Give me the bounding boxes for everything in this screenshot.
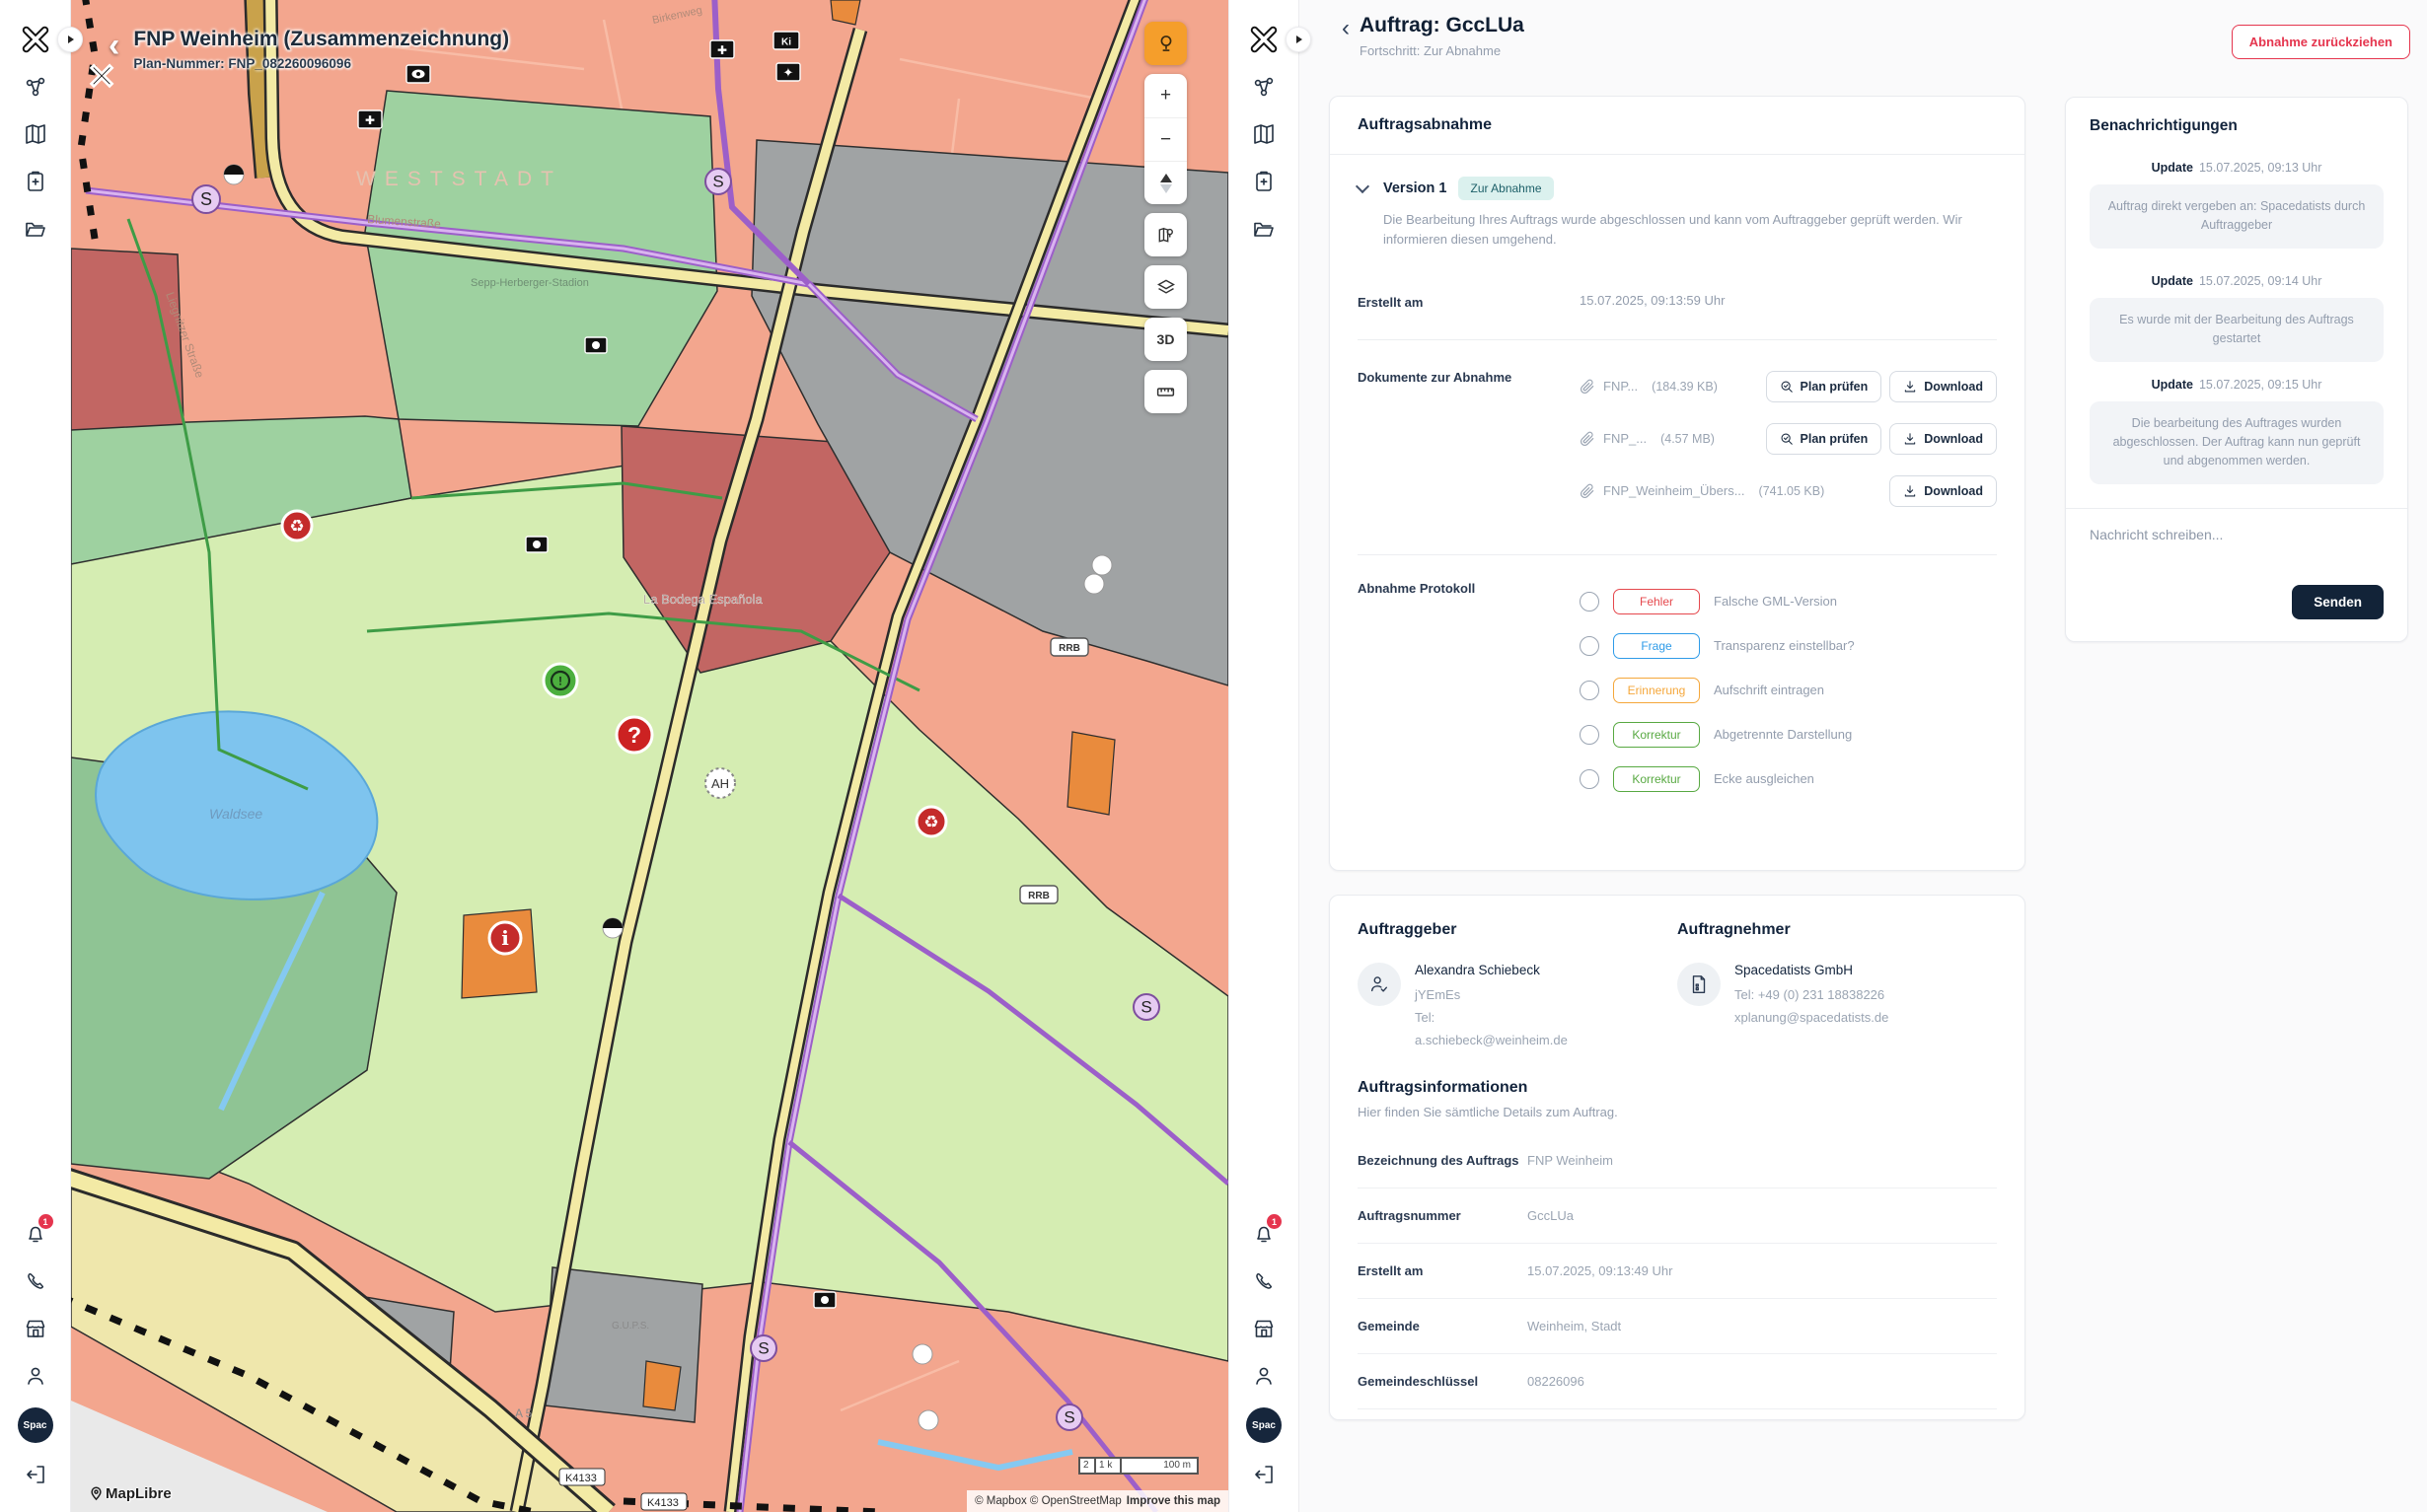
avatar[interactable]: Spac bbox=[18, 1407, 53, 1443]
protocol-radio[interactable] bbox=[1580, 681, 1599, 700]
paperclip-icon bbox=[1580, 431, 1595, 447]
back-chevron-icon[interactable]: ‹ bbox=[1342, 14, 1350, 58]
magnifier-check-icon bbox=[1780, 380, 1794, 394]
protocol-tag-korrektur: Korrektur bbox=[1613, 766, 1700, 792]
table-row: Erstellt am 15.07.2025, 09:13:49 Uhr bbox=[1358, 1244, 1997, 1299]
network-share-icon[interactable] bbox=[15, 66, 56, 108]
layers-button[interactable] bbox=[1144, 265, 1187, 309]
protocol-radio[interactable] bbox=[1580, 636, 1599, 656]
protocol-tag-erinnerung: Erinnerung bbox=[1613, 678, 1700, 703]
notification-message: Die bearbeitung des Auftrages wurden abg… bbox=[2090, 401, 2384, 484]
map-label-area: G.U.P.S. bbox=[612, 1321, 649, 1332]
svg-text:?: ? bbox=[627, 722, 641, 748]
download-button[interactable]: Download bbox=[1889, 475, 1997, 507]
contractor-block: Auftragnehmer Spacedatists GmbH Tel: +49… bbox=[1677, 921, 1997, 1051]
notification-message: Es wurde mit der Bearbeitung des Auftrag… bbox=[2090, 298, 2384, 362]
phone-icon[interactable] bbox=[1243, 1260, 1285, 1302]
layers-icon bbox=[1144, 265, 1187, 309]
notification-message: Auftrag direkt vergeben an: Spacedatists… bbox=[2090, 184, 2384, 249]
clipboard-add-icon[interactable] bbox=[15, 161, 56, 202]
document-name[interactable]: FNP... bbox=[1603, 379, 1638, 394]
zoom-out-button[interactable]: − bbox=[1144, 117, 1187, 161]
check-plan-button[interactable]: Plan prüfen bbox=[1766, 423, 1882, 455]
profile-person-icon[interactable] bbox=[15, 1355, 56, 1397]
progress-status: Fortschritt: Zur Abnahme bbox=[1360, 43, 1524, 58]
version-collapse-chevron-icon[interactable] bbox=[1356, 180, 1369, 193]
document-size: (741.05 KB) bbox=[1759, 484, 1825, 498]
notifications-title: Benachrichtigungen bbox=[2090, 117, 2384, 135]
download-button[interactable]: Download bbox=[1889, 423, 1997, 455]
client-email[interactable]: a.schiebeck@weinheim.de bbox=[1415, 1030, 1568, 1052]
svg-text:S: S bbox=[758, 1339, 769, 1358]
magnifier-check-icon bbox=[1780, 432, 1794, 446]
folder-icon[interactable] bbox=[15, 208, 56, 250]
bell-badge: 1 bbox=[1267, 1214, 1282, 1229]
map-label-lake: Waldsee bbox=[209, 806, 262, 822]
map-plan-title: FNP Weinheim (Zusammenzeichnung) bbox=[133, 28, 509, 51]
expand-sidebar-button[interactable] bbox=[57, 27, 83, 52]
bell-badge: 1 bbox=[38, 1214, 53, 1229]
order-info-card: Auftraggeber Alexandra Schiebeck jYEmEs … bbox=[1329, 895, 2025, 1420]
version-label: Version 1 bbox=[1383, 180, 1446, 196]
contractor-heading: Auftragnehmer bbox=[1677, 921, 1997, 939]
map-poi-ki: Ki bbox=[781, 37, 791, 48]
company-document-icon bbox=[1677, 963, 1721, 1006]
table-row: Auftragsnummer GccLUa bbox=[1358, 1188, 1997, 1244]
map-label-motorway: A 5 bbox=[515, 1406, 533, 1420]
document-row: FNP... (184.39 KB) Plan prüfen bbox=[1580, 368, 1997, 404]
acceptance-card-title: Auftragsabnahme bbox=[1330, 97, 2024, 155]
map-plan-number: Plan-Nummer: FNP_082260096096 bbox=[133, 56, 509, 71]
page-title: Auftrag: GccLUa bbox=[1360, 14, 1524, 37]
scale-label: 100 m bbox=[1120, 1457, 1199, 1475]
svg-text:RRB: RRB bbox=[1059, 643, 1080, 654]
document-name[interactable]: FNP_... bbox=[1603, 431, 1647, 446]
map-scalebar: 2 1 k 100 m bbox=[1078, 1457, 1199, 1475]
avatar[interactable]: Spac bbox=[1246, 1407, 1282, 1443]
compass-button[interactable] bbox=[1144, 161, 1187, 204]
table-row: Gemeinde Weinheim, Stadt bbox=[1358, 1299, 1997, 1354]
collapse-panel-button[interactable] bbox=[1286, 27, 1311, 52]
logout-icon[interactable] bbox=[15, 1454, 56, 1495]
protocol-list: Fehler Falsche GML-Version Frage Transpa… bbox=[1580, 579, 1997, 801]
paperclip-icon bbox=[1580, 483, 1595, 499]
map-attribution: © Mapbox © OpenStreetMap Improve this ma… bbox=[967, 1490, 1228, 1512]
created-at-value: 15.07.2025, 09:13:59 Uhr bbox=[1580, 293, 1997, 308]
three-d-label: 3D bbox=[1144, 318, 1187, 361]
map-nav-icon[interactable] bbox=[1243, 113, 1285, 155]
map-label-stadium: Sepp-Herberger-Stadion bbox=[471, 277, 589, 289]
content-header: ‹ Auftrag: GccLUa Fortschritt: Zur Abnah… bbox=[1329, 0, 2427, 96]
order-detail-panel: ‹ Auftrag: GccLUa Fortschritt: Zur Abnah… bbox=[1299, 0, 2427, 1512]
map-title-overlay: ‹ FNP Weinheim (Zusammenzeichnung) Plan-… bbox=[109, 28, 509, 71]
logout-icon[interactable] bbox=[1243, 1454, 1285, 1495]
svg-text:S: S bbox=[200, 189, 212, 209]
svg-text:✦: ✦ bbox=[783, 65, 794, 80]
order-info-title: Auftragsinformationen bbox=[1358, 1079, 1997, 1097]
withdraw-acceptance-button[interactable]: Abnahme zurückziehen bbox=[2232, 25, 2410, 59]
profile-person-icon[interactable] bbox=[1243, 1355, 1285, 1397]
svg-text:AH: AH bbox=[711, 776, 729, 791]
three-d-button[interactable]: 3D bbox=[1144, 318, 1187, 361]
protocol-row: Fehler Falsche GML-Version bbox=[1580, 579, 1997, 623]
basemap-button[interactable] bbox=[1144, 213, 1187, 256]
panel-sidebar: 1 Spac bbox=[1228, 0, 1299, 1512]
phone-icon[interactable] bbox=[15, 1260, 56, 1302]
notification-bell-icon[interactable]: 1 bbox=[1243, 1213, 1285, 1255]
notifications-card: Benachrichtigungen Update15.07.2025, 09:… bbox=[2065, 97, 2408, 642]
map-back-chevron-icon[interactable]: ‹ bbox=[109, 28, 119, 63]
svg-text:RRB: RRB bbox=[1028, 891, 1050, 901]
basemap-svg: WESTSTADT Waldsee La Bodega Española Sep… bbox=[71, 0, 1228, 1512]
document-name[interactable]: FNP_Weinheim_Übers... bbox=[1603, 483, 1745, 498]
map-pin-icon bbox=[1144, 213, 1187, 256]
client-org: jYEmEs bbox=[1415, 984, 1568, 1007]
order-info-table: Bezeichnung des Auftrags FNP Weinheim Au… bbox=[1358, 1133, 1997, 1409]
measure-button[interactable] bbox=[1144, 370, 1187, 413]
marketplace-store-icon[interactable] bbox=[15, 1308, 56, 1349]
download-icon bbox=[1903, 380, 1917, 394]
svg-text:S: S bbox=[712, 173, 723, 191]
map-shield-k4133-1: K4133 bbox=[565, 1473, 597, 1484]
client-phone: Tel: bbox=[1415, 1007, 1568, 1030]
map-nav-icon[interactable] bbox=[15, 113, 56, 155]
map-controls: + − 3D bbox=[1144, 22, 1187, 413]
zoom-in-button[interactable]: + bbox=[1144, 74, 1187, 117]
protocol-row: Frage Transparenz einstellbar? bbox=[1580, 623, 1997, 668]
notification-item: Update15.07.2025, 09:15 Uhr Die bearbeit… bbox=[2090, 378, 2384, 484]
folder-icon[interactable] bbox=[1243, 208, 1285, 250]
ruler-icon bbox=[1144, 370, 1187, 413]
protocol-tag-fehler: Fehler bbox=[1613, 589, 1700, 614]
maplibre-logo: MapLibre bbox=[89, 1485, 172, 1502]
status-badge: Zur Abnahme bbox=[1458, 177, 1553, 200]
notification-bell-icon[interactable]: 1 bbox=[15, 1213, 56, 1255]
map-canvas[interactable]: WESTSTADT Waldsee La Bodega Española Sep… bbox=[71, 0, 1228, 1512]
check-plan-button[interactable]: Plan prüfen bbox=[1766, 371, 1882, 402]
protocol-row: Korrektur Ecke ausgleichen bbox=[1580, 756, 1997, 801]
download-icon bbox=[1903, 484, 1917, 498]
person-check-icon bbox=[1358, 963, 1401, 1006]
created-at-label: Erstellt am bbox=[1358, 293, 1580, 310]
client-block: Auftraggeber Alexandra Schiebeck jYEmEs … bbox=[1358, 921, 1677, 1051]
table-row: Gemeindeschlüssel 08226096 bbox=[1358, 1354, 1997, 1409]
acceptance-card: Auftragsabnahme Version 1 Zur Abnahme Di… bbox=[1329, 96, 2025, 871]
download-button[interactable]: Download bbox=[1889, 371, 1997, 402]
protocol-radio[interactable] bbox=[1580, 769, 1599, 789]
protocol-row: Erinnerung Aufschrift eintragen bbox=[1580, 668, 1997, 712]
message-input[interactable] bbox=[2090, 527, 2384, 580]
notification-item: Update15.07.2025, 09:14 Uhr Es wurde mit… bbox=[2090, 274, 2384, 362]
version-description: Die Bearbeitung Ihres Auftrags wurde abg… bbox=[1383, 210, 1975, 250]
send-button[interactable]: Senden bbox=[2292, 585, 2384, 619]
contractor-phone: Tel: +49 (0) 231 18838226 bbox=[1734, 984, 1888, 1007]
protocol-radio[interactable] bbox=[1580, 725, 1599, 745]
document-size: (4.57 MB) bbox=[1660, 432, 1715, 446]
protocol-label: Abnahme Protokoll bbox=[1358, 579, 1580, 596]
document-row: FNP_Weinheim_Übers... (741.05 KB) Downlo… bbox=[1580, 472, 1997, 509]
contractor-email[interactable]: xplanung@spacedatists.de bbox=[1734, 1007, 1888, 1030]
protocol-tag-korrektur: Korrektur bbox=[1613, 722, 1700, 748]
svg-text:✚: ✚ bbox=[365, 113, 375, 127]
document-size: (184.39 KB) bbox=[1652, 380, 1718, 394]
contractor-name: Spacedatists GmbH bbox=[1734, 963, 1888, 977]
map-label-district: WESTSTADT bbox=[356, 168, 562, 190]
clipboard-add-icon[interactable] bbox=[1243, 161, 1285, 202]
left-sidebar: 1 Spac bbox=[0, 0, 71, 1512]
documents-label: Dokumente zur Abnahme bbox=[1358, 368, 1580, 385]
notification-item: Update15.07.2025, 09:13 Uhr Auftrag dire… bbox=[2090, 161, 2384, 249]
svg-text:♻: ♻ bbox=[289, 517, 304, 536]
protocol-tag-frage: Frage bbox=[1613, 633, 1700, 659]
network-share-icon[interactable] bbox=[1243, 66, 1285, 108]
brand-x-logo-icon bbox=[1243, 19, 1285, 60]
client-heading: Auftraggeber bbox=[1358, 921, 1677, 939]
protocol-row: Korrektur Abgetrennte Darstellung bbox=[1580, 712, 1997, 756]
svg-text:i: i bbox=[501, 926, 509, 950]
download-icon bbox=[1903, 432, 1917, 446]
location-pin-icon bbox=[1144, 22, 1187, 65]
svg-text:S: S bbox=[1140, 998, 1151, 1017]
client-name: Alexandra Schiebeck bbox=[1415, 963, 1568, 977]
map-label-restaurant: La Bodega Española bbox=[643, 592, 763, 607]
paperclip-icon bbox=[1580, 379, 1595, 395]
map-shield-k4133-2: K4133 bbox=[647, 1497, 679, 1509]
zoom-control-group: + − bbox=[1144, 74, 1187, 204]
protocol-radio[interactable] bbox=[1580, 592, 1599, 612]
document-row: FNP_... (4.57 MB) Plan prüfen bbox=[1580, 420, 1997, 457]
svg-text:S: S bbox=[1064, 1408, 1074, 1427]
brand-x-logo-icon bbox=[15, 19, 56, 60]
improve-map-link[interactable]: Improve this map bbox=[1127, 1495, 1220, 1507]
svg-text:!: ! bbox=[558, 675, 562, 688]
table-row: Bezeichnung des Auftrags FNP Weinheim bbox=[1358, 1133, 1997, 1188]
svg-text:♻: ♻ bbox=[923, 813, 938, 831]
app-root: 1 Spac bbox=[0, 0, 2427, 1512]
marker-tool-button[interactable] bbox=[1144, 22, 1187, 65]
svg-text:✚: ✚ bbox=[717, 43, 727, 57]
order-info-subtitle: Hier finden Sie sämtliche Details zum Au… bbox=[1358, 1105, 1997, 1119]
marketplace-store-icon[interactable] bbox=[1243, 1308, 1285, 1349]
